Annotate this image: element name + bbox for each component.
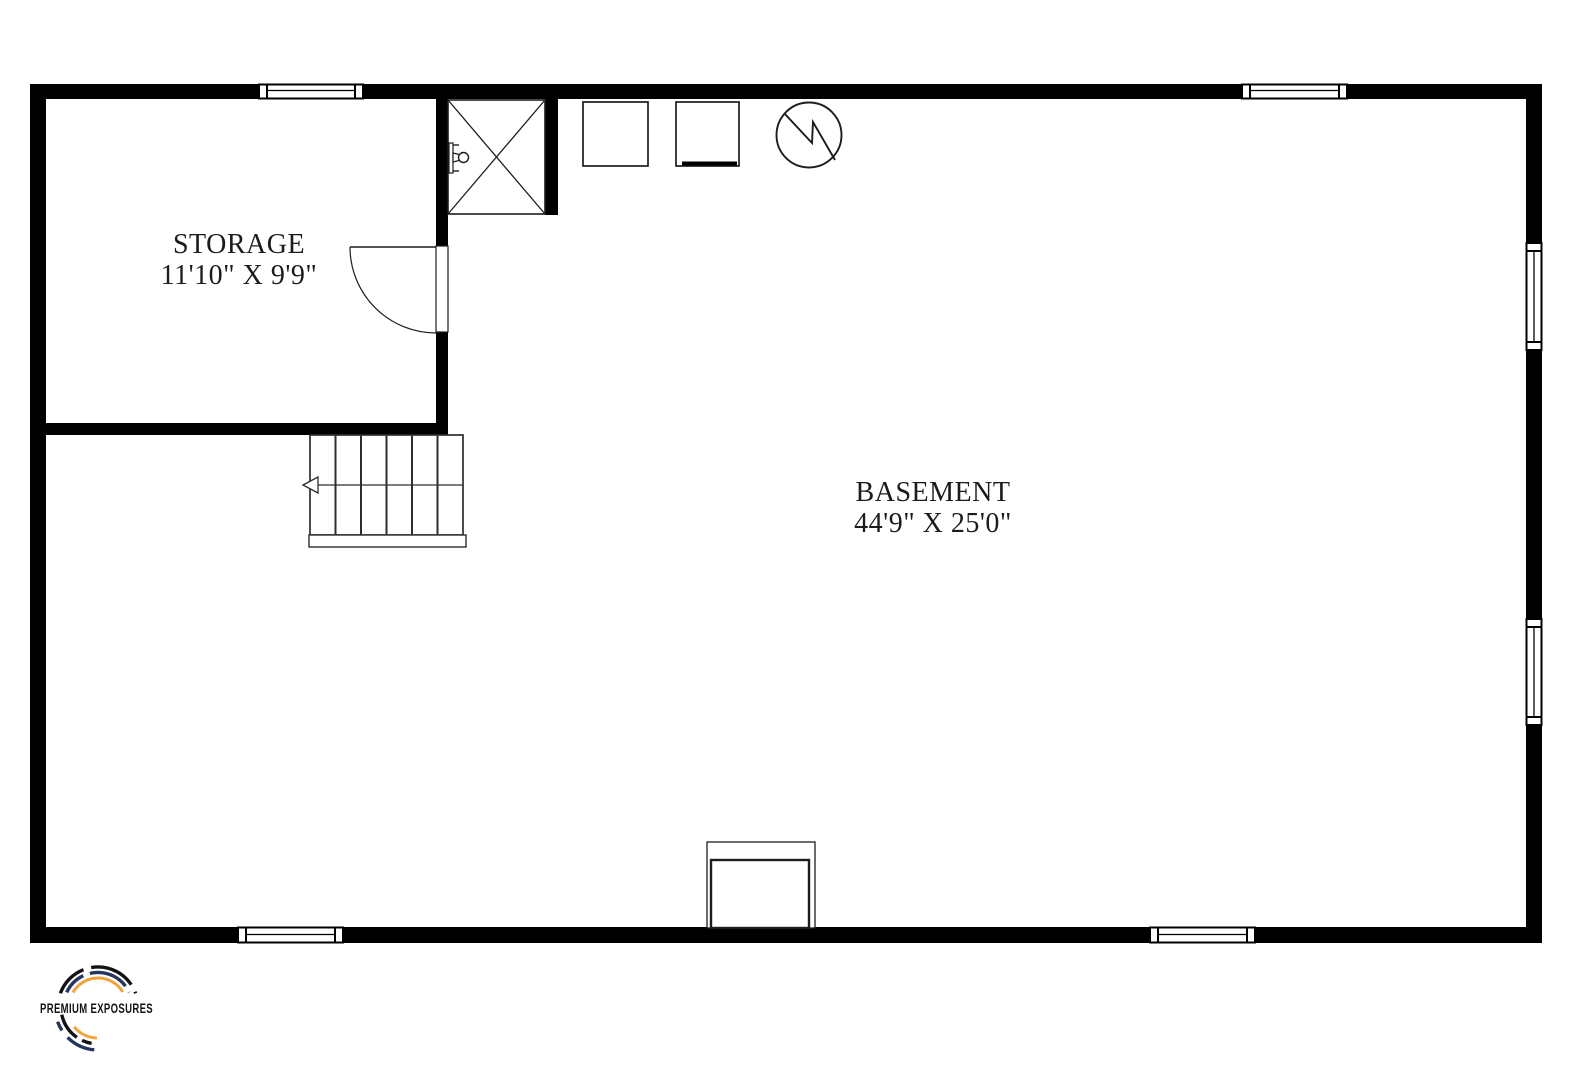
storage-wall-right-lower	[436, 331, 448, 435]
stairs-icon	[303, 435, 466, 547]
room-name: BASEMENT	[758, 477, 1108, 508]
shower-icon	[448, 100, 545, 214]
dryer-icon	[676, 102, 739, 166]
window-icon	[1242, 85, 1347, 99]
bolt-glyph	[784, 113, 835, 160]
logo-text: PREMIUM EXPOSURES	[40, 1001, 153, 1016]
room-name: STORAGE	[64, 229, 414, 260]
floor-plan-canvas: PREMIUM EXPOSURES STORAGE 11'10" X 9'9" …	[0, 0, 1574, 1080]
storage-wall-bottom	[30, 423, 448, 435]
premium-exposures-logo: PREMIUM EXPOSURES	[40, 967, 153, 1050]
floor-plan-drawing: PREMIUM EXPOSURES	[0, 0, 1574, 1080]
room-label-basement: BASEMENT 44'9" X 25'0"	[758, 477, 1108, 539]
room-dimensions: 11'10" X 9'9"	[64, 260, 414, 291]
wall-left	[30, 84, 46, 943]
washer-icon	[583, 102, 648, 166]
wall-right	[1526, 84, 1542, 943]
window-icon	[1150, 928, 1255, 943]
fireplace-icon	[707, 842, 815, 928]
water-heater-icon	[777, 103, 842, 168]
room-dimensions: 44'9" X 25'0"	[758, 508, 1108, 539]
logo-arc-orange-top	[73, 978, 125, 996]
room-label-storage: STORAGE 11'10" X 9'9"	[64, 229, 414, 291]
door-opening	[436, 246, 448, 332]
shower-stub-wall	[545, 84, 558, 215]
storage-wall-right-upper	[436, 99, 448, 246]
stairs-landing	[309, 535, 466, 547]
window-icon	[1527, 619, 1542, 725]
window-icon	[259, 85, 363, 99]
window-icon	[238, 928, 343, 943]
window-icon	[1527, 243, 1542, 350]
